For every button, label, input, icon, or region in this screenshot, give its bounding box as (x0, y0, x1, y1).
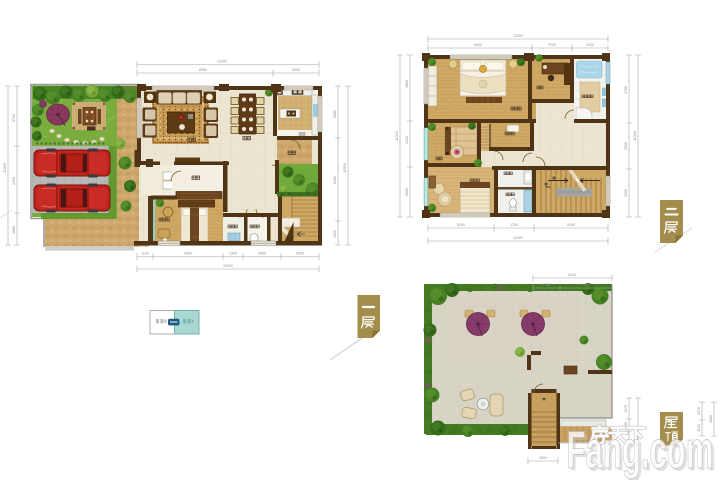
svg-text:3680: 3680 (333, 110, 337, 118)
svg-text:8950: 8950 (199, 68, 207, 72)
svg-text:12000: 12000 (217, 60, 227, 64)
svg-text:3680: 3680 (12, 226, 16, 234)
svg-text:3050: 3050 (296, 252, 304, 256)
svg-text:1700: 1700 (510, 223, 518, 227)
svg-text:5200: 5200 (457, 223, 465, 227)
svg-text:3400: 3400 (582, 283, 590, 287)
svg-text:11330: 11330 (395, 131, 399, 141)
svg-text:1700: 1700 (542, 283, 550, 287)
svg-text:1300: 1300 (229, 252, 237, 256)
svg-text:Fang.com: Fang.com (567, 421, 714, 480)
svg-text:2780: 2780 (624, 86, 628, 94)
svg-text:2530: 2530 (624, 142, 628, 150)
svg-text:11500: 11500 (3, 163, 7, 173)
svg-text:1100: 1100 (141, 252, 149, 256)
svg-text:1370: 1370 (624, 405, 628, 413)
svg-text:3050: 3050 (258, 252, 266, 256)
svg-text:12000: 12000 (513, 34, 523, 38)
svg-text:4500: 4500 (184, 252, 192, 256)
svg-text:2700: 2700 (548, 43, 556, 47)
svg-text:5100: 5100 (568, 273, 576, 277)
svg-text:2300: 2300 (12, 177, 16, 185)
svg-text:3060: 3060 (624, 189, 628, 197)
svg-text:11330: 11330 (633, 131, 637, 141)
svg-text:1370: 1370 (697, 407, 701, 415)
svg-text:1530: 1530 (333, 230, 337, 238)
svg-text:3050: 3050 (292, 68, 300, 72)
svg-text:11500: 11500 (343, 163, 347, 173)
svg-text:3060: 3060 (405, 188, 409, 196)
svg-text:6180: 6180 (333, 176, 337, 184)
svg-text:4850: 4850 (405, 80, 409, 88)
svg-text:2330: 2330 (405, 136, 409, 144)
svg-text:2400: 2400 (586, 43, 594, 47)
svg-text:6900: 6900 (474, 43, 482, 47)
svg-text:12000: 12000 (223, 264, 233, 268)
svg-text:5720: 5720 (12, 114, 16, 122)
svg-text:12000: 12000 (513, 236, 523, 240)
svg-text:1500: 1500 (539, 456, 547, 460)
svg-text:5100: 5100 (567, 223, 575, 227)
